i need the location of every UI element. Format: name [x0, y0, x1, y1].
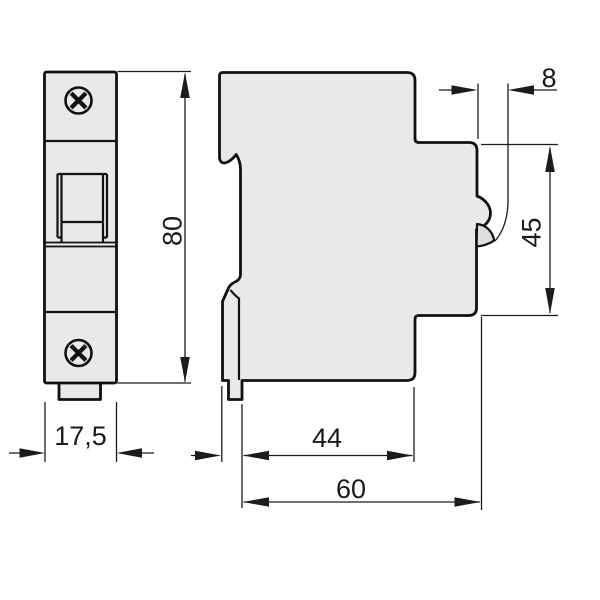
arrowhead-outside: [195, 451, 221, 461]
front-view: [45, 72, 117, 400]
drawing-canvas: 17,5 80 8 45 44: [0, 0, 600, 600]
dim-overall-depth-label: 60: [336, 474, 366, 504]
side-body-outline: [220, 73, 491, 400]
side-view: [220, 73, 495, 400]
dim-overall-height: 80: [118, 72, 192, 384]
dim-front-width: 17,5: [9, 402, 154, 462]
dim-depth-to-step: 44: [191, 386, 414, 508]
arrowhead-top: [180, 73, 190, 99]
extension-line-right-curved: [495, 84, 508, 242]
arrowhead-right: [508, 85, 534, 95]
arrowhead-right: [455, 497, 481, 507]
front-body: [45, 72, 117, 383]
dim-face-height-label: 45: [517, 217, 547, 247]
arrowhead-left: [20, 448, 46, 458]
arrowhead-right: [117, 448, 143, 458]
dim-face-height: 45: [481, 145, 558, 316]
dimension-drawing: 17,5 80 8 45 44: [0, 0, 600, 600]
dim-overall-height-label: 80: [158, 216, 188, 246]
toggle-handle-side: [477, 224, 495, 246]
arrowhead-bottom: [180, 357, 190, 383]
arrowhead-top: [545, 146, 555, 172]
arrowhead-bottom: [545, 288, 555, 314]
arrowhead-left: [243, 497, 269, 507]
arrowhead-left: [243, 451, 269, 461]
arrowhead-right: [387, 451, 413, 461]
dim-front-width-label: 17,5: [54, 421, 107, 451]
dim-handle-depth-label: 8: [541, 63, 556, 93]
front-foot: [59, 383, 101, 400]
arrowhead-left: [452, 85, 478, 95]
dim-depth-to-step-label: 44: [312, 423, 342, 453]
